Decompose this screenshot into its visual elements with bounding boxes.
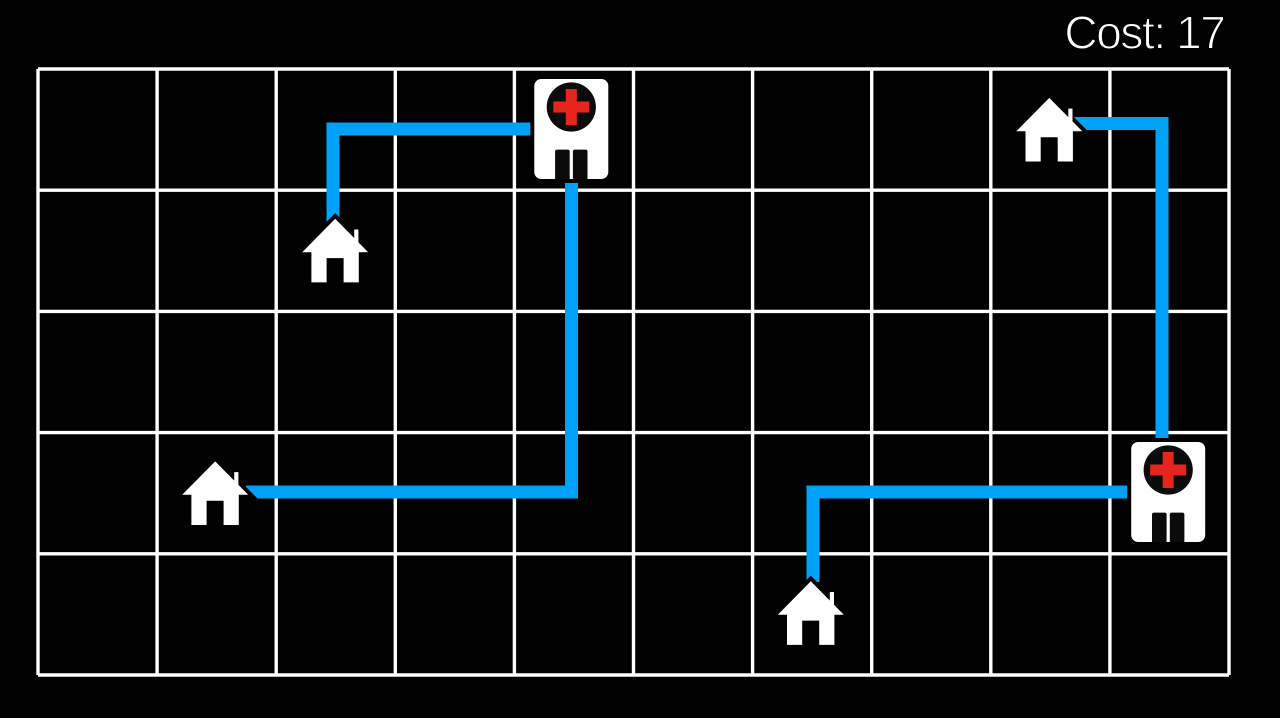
- svg-text:Cost: 17: Cost: 17: [1064, 6, 1224, 58]
